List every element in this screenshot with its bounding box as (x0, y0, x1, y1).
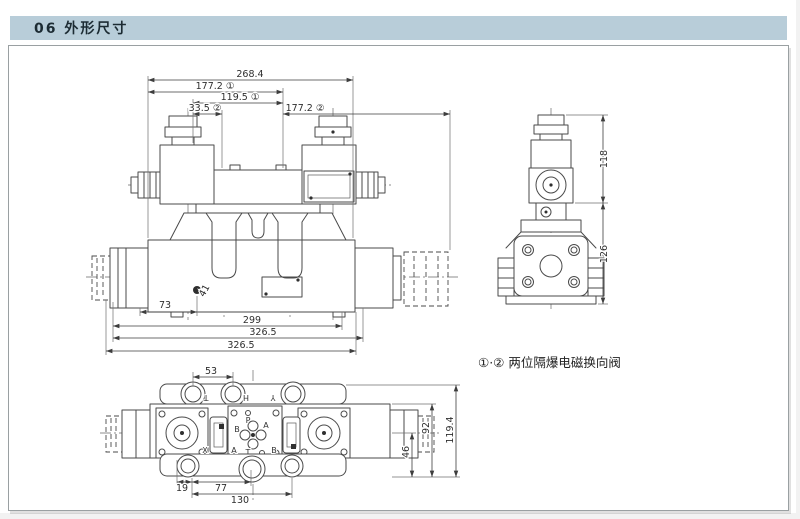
port-a-label: A (231, 446, 237, 455)
dim-126-label: 126 (599, 245, 610, 263)
valve-note: ①·② 两位隔爆电磁换向阀 (478, 355, 621, 370)
port-b-center-label: B (234, 425, 240, 434)
technical-drawing: 41 268.4 177.2 ① 119.5 ① 33.5 ② 177.2 ② (0, 0, 800, 519)
dim-177-2-2-label: 177.2 ② (286, 103, 325, 114)
dim-73-label: 73 (159, 300, 171, 311)
bottom-view: T H Y (100, 366, 460, 506)
port-x-label: X (202, 446, 208, 455)
side-view-solenoid (529, 115, 573, 203)
dim-119-4-label: 119.4 (445, 416, 456, 443)
right-end-cap (355, 248, 448, 308)
port-a-center-label: A (263, 421, 269, 430)
front-view: 41 268.4 177.2 ① 119.5 ① 33.5 ② 177.2 ② (86, 69, 458, 355)
dim-177-2-1-label: 177.2 ① (196, 81, 235, 92)
side-view: 118 126 (498, 108, 610, 312)
pilot-valve (214, 165, 302, 204)
port-top-t-label: T (203, 393, 209, 402)
dim-46-label: 46 (401, 446, 412, 458)
catalog-page: 06 外形尺寸 (0, 0, 796, 513)
dim-326-5-b-label: 326.5 (227, 340, 254, 351)
port-top-h-label: H (243, 393, 249, 402)
left-end-cap (92, 248, 148, 308)
bottom-view-right-flange (298, 408, 350, 458)
side-view-body (498, 203, 604, 304)
dim-19-label: 19 (176, 483, 188, 494)
bottom-view-top-lobes: T H Y (160, 382, 346, 406)
dim-92-label: 92 (421, 422, 432, 434)
dim-33-5-label: 33.5 ② (189, 103, 222, 114)
main-valve-body (148, 204, 355, 317)
dim-77-label: 77 (215, 483, 227, 494)
bottom-view-left-flange (156, 408, 208, 458)
dim-299-label: 299 (243, 315, 261, 326)
right-solenoid (302, 116, 385, 204)
port-p-label: P (246, 416, 251, 425)
dim-326-5-a-label: 326.5 (249, 327, 276, 338)
dim-118-label: 118 (599, 150, 610, 168)
port-b-label: B (271, 446, 277, 455)
port-top-y-label: Y (270, 393, 276, 402)
dim-119-5-label: 119.5 ① (221, 92, 260, 103)
dim-130-label: 130 (231, 495, 249, 506)
left-solenoid (131, 116, 214, 204)
dim-53-label: 53 (205, 366, 217, 377)
dim-268-4-label: 268.4 (236, 69, 263, 80)
